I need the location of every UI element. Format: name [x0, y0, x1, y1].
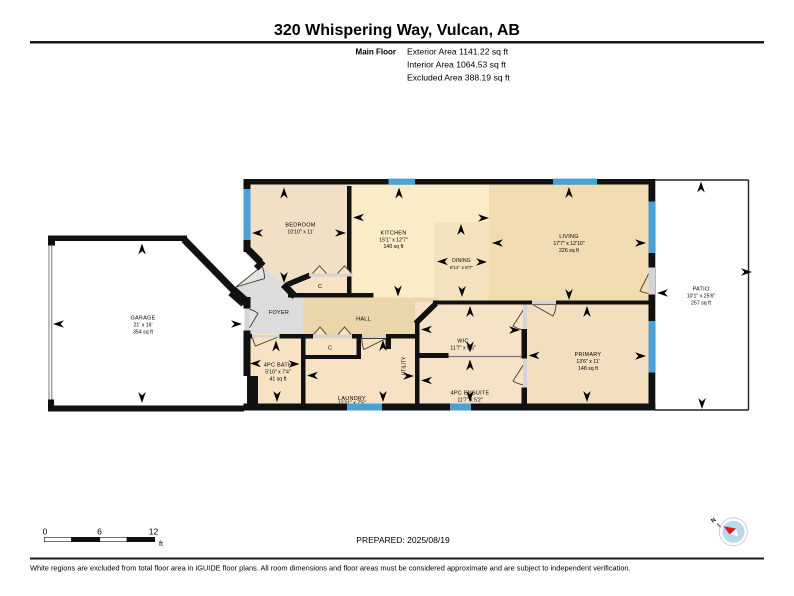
svg-text:226 sq ft: 226 sq ft: [559, 248, 579, 254]
svg-text:ft: ft: [159, 541, 163, 548]
svg-text:DINING: DINING: [452, 258, 471, 264]
svg-text:11'7" x 5'6": 11'7" x 5'6": [450, 346, 475, 352]
svg-text:12: 12: [149, 527, 159, 537]
svg-text:8'11" x 8'7": 8'11" x 8'7": [450, 265, 474, 271]
svg-text:140 sq ft: 140 sq ft: [384, 244, 404, 250]
svg-text:Interior Area 1064.53 sq ft: Interior Area 1064.53 sq ft: [407, 60, 507, 70]
svg-text:C: C: [328, 346, 332, 352]
svg-text:41 sq ft: 41 sq ft: [269, 377, 287, 383]
svg-text:6: 6: [97, 527, 102, 537]
svg-text:21' x 16': 21' x 16': [134, 323, 153, 329]
svg-text:PATIO: PATIO: [693, 287, 710, 293]
svg-text:PRIMARY: PRIMARY: [575, 352, 602, 358]
svg-text:WIC: WIC: [457, 339, 468, 345]
svg-text:FOYER: FOYER: [269, 310, 289, 316]
svg-text:UTILITY: UTILITY: [402, 356, 408, 375]
svg-text:0: 0: [43, 527, 48, 537]
svg-text:13'6" x 11': 13'6" x 11': [576, 359, 599, 365]
svg-text:White regions are excluded fro: White regions are excluded from total fl…: [30, 564, 631, 573]
svg-text:C: C: [318, 284, 322, 290]
svg-text:GARAGE: GARAGE: [130, 316, 155, 322]
svg-text:KITCHEN: KITCHEN: [381, 230, 407, 236]
svg-text:Excluded Area 388.19 sq ft: Excluded Area 388.19 sq ft: [407, 73, 510, 83]
svg-text:10'1" x 25'6": 10'1" x 25'6": [687, 294, 716, 300]
svg-text:LAUNDRY: LAUNDRY: [338, 396, 366, 402]
svg-text:320 Whispering Way, Vulcan, AB: 320 Whispering Way, Vulcan, AB: [274, 22, 520, 39]
svg-text:148 sq ft: 148 sq ft: [578, 366, 598, 372]
svg-text:5'10" x 7'4": 5'10" x 7'4": [265, 370, 291, 376]
svg-text:15'1" x 12'7": 15'1" x 12'7": [379, 237, 408, 243]
svg-text:10'10" x 11': 10'10" x 11': [287, 230, 313, 236]
svg-text:PREPARED: 2025/08/19: PREPARED: 2025/08/19: [356, 535, 450, 545]
svg-text:4PC BATH: 4PC BATH: [264, 363, 293, 369]
svg-text:Exterior Area 1141.22 sq ft: Exterior Area 1141.22 sq ft: [407, 47, 509, 57]
svg-text:257 sq ft: 257 sq ft: [691, 301, 711, 307]
svg-text:354 sq ft: 354 sq ft: [133, 330, 153, 336]
svg-text:LIVING: LIVING: [559, 234, 579, 240]
svg-text:BEDROOM: BEDROOM: [285, 223, 315, 229]
svg-text:Main Floor: Main Floor: [356, 48, 396, 57]
svg-text:HALL: HALL: [356, 316, 371, 322]
svg-text:4PC ENSUITE: 4PC ENSUITE: [451, 391, 490, 397]
svg-text:17'7" x 12'10": 17'7" x 12'10": [553, 241, 584, 247]
